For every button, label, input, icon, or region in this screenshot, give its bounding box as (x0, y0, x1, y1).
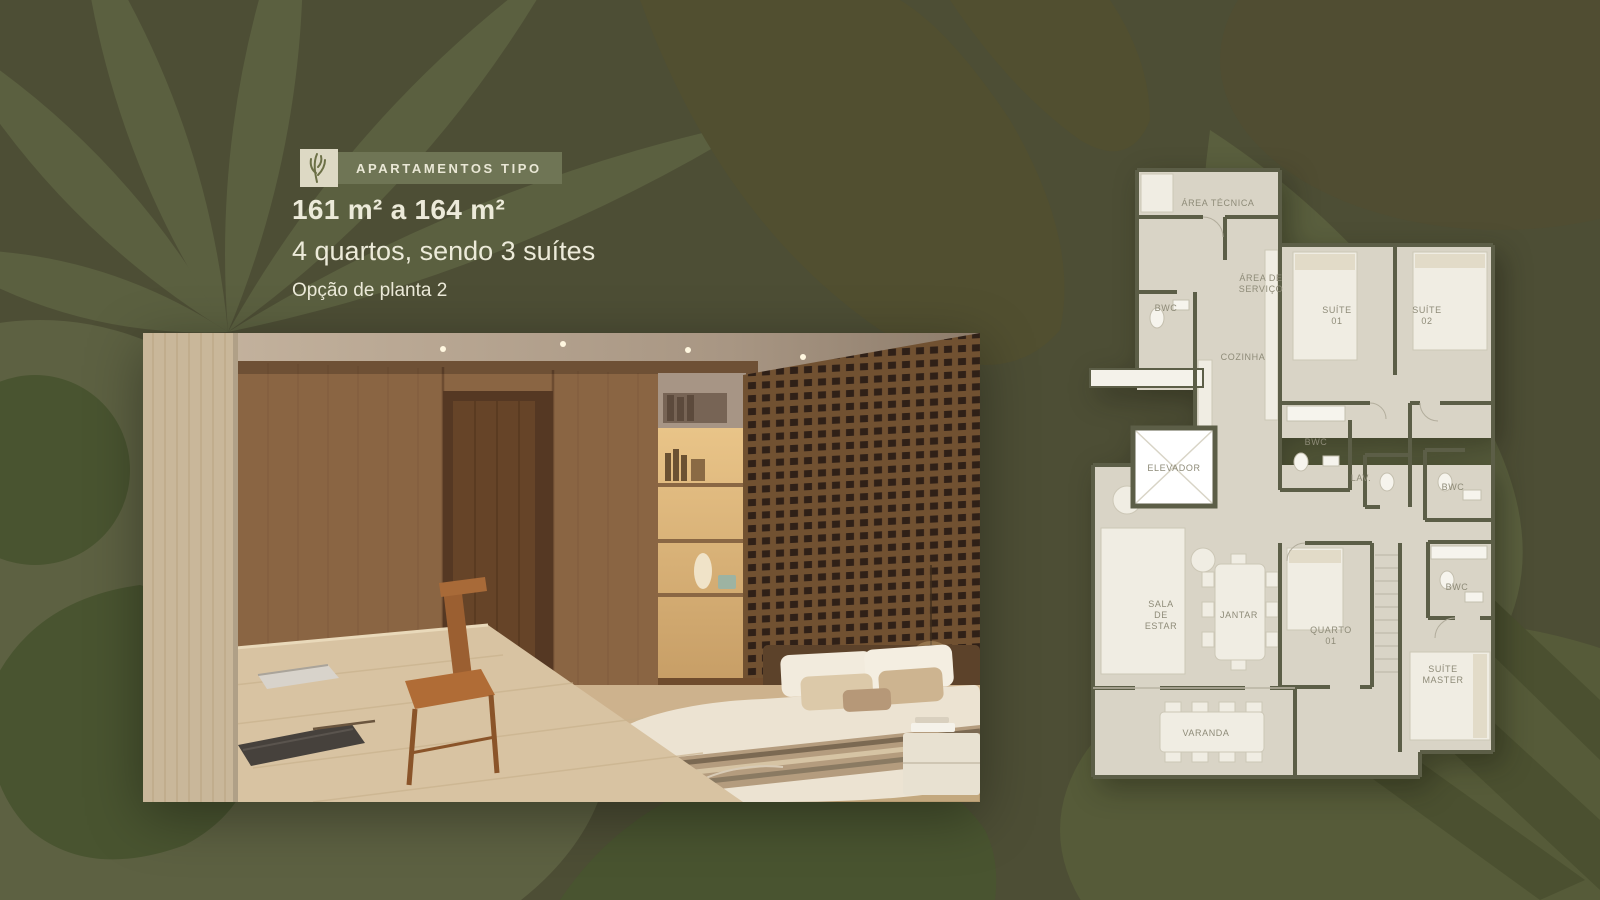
svg-text:BWC: BWC (1442, 482, 1465, 492)
headline: 161 m² a 164 m² 4 quartos, sendo 3 suíte… (292, 196, 595, 300)
svg-text:ÁREA TÉCNICA: ÁREA TÉCNICA (1181, 198, 1254, 208)
svg-text:BWC: BWC (1446, 582, 1469, 592)
bedroom-photo (143, 333, 980, 802)
headline-area: 161 m² a 164 m² (292, 196, 595, 224)
badge-strip: APARTAMENTOS TIPO (338, 152, 562, 184)
svg-text:JANTAR: JANTAR (1220, 610, 1258, 620)
svg-text:ELEVADOR: ELEVADOR (1147, 463, 1200, 473)
svg-text:COZINHA: COZINHA (1221, 352, 1266, 362)
svg-text:BWC: BWC (1155, 303, 1178, 313)
headline-variant: Opção de planta 2 (292, 281, 595, 300)
svg-text:LAV.: LAV. (1351, 473, 1371, 483)
leaf-icon (300, 149, 338, 187)
svg-text:ÁREA DESERVIÇO: ÁREA DESERVIÇO (1239, 273, 1284, 294)
badge-label: APARTAMENTOS TIPO (356, 161, 542, 176)
headline-rooms: 4 quartos, sendo 3 suítes (292, 238, 595, 265)
svg-text:BWC: BWC (1305, 437, 1328, 447)
floorplan: ÁREA TÉCNICA BWC ÁREA DESERVIÇO COZINHA … (1065, 160, 1495, 780)
section-badge: APARTAMENTOS TIPO (300, 149, 562, 187)
svg-text:SUÍTEMASTER: SUÍTEMASTER (1422, 664, 1463, 685)
apartment-marketing-slide: APARTAMENTOS TIPO 161 m² a 164 m² 4 quar… (0, 0, 1600, 900)
svg-text:VARANDA: VARANDA (1182, 728, 1229, 738)
